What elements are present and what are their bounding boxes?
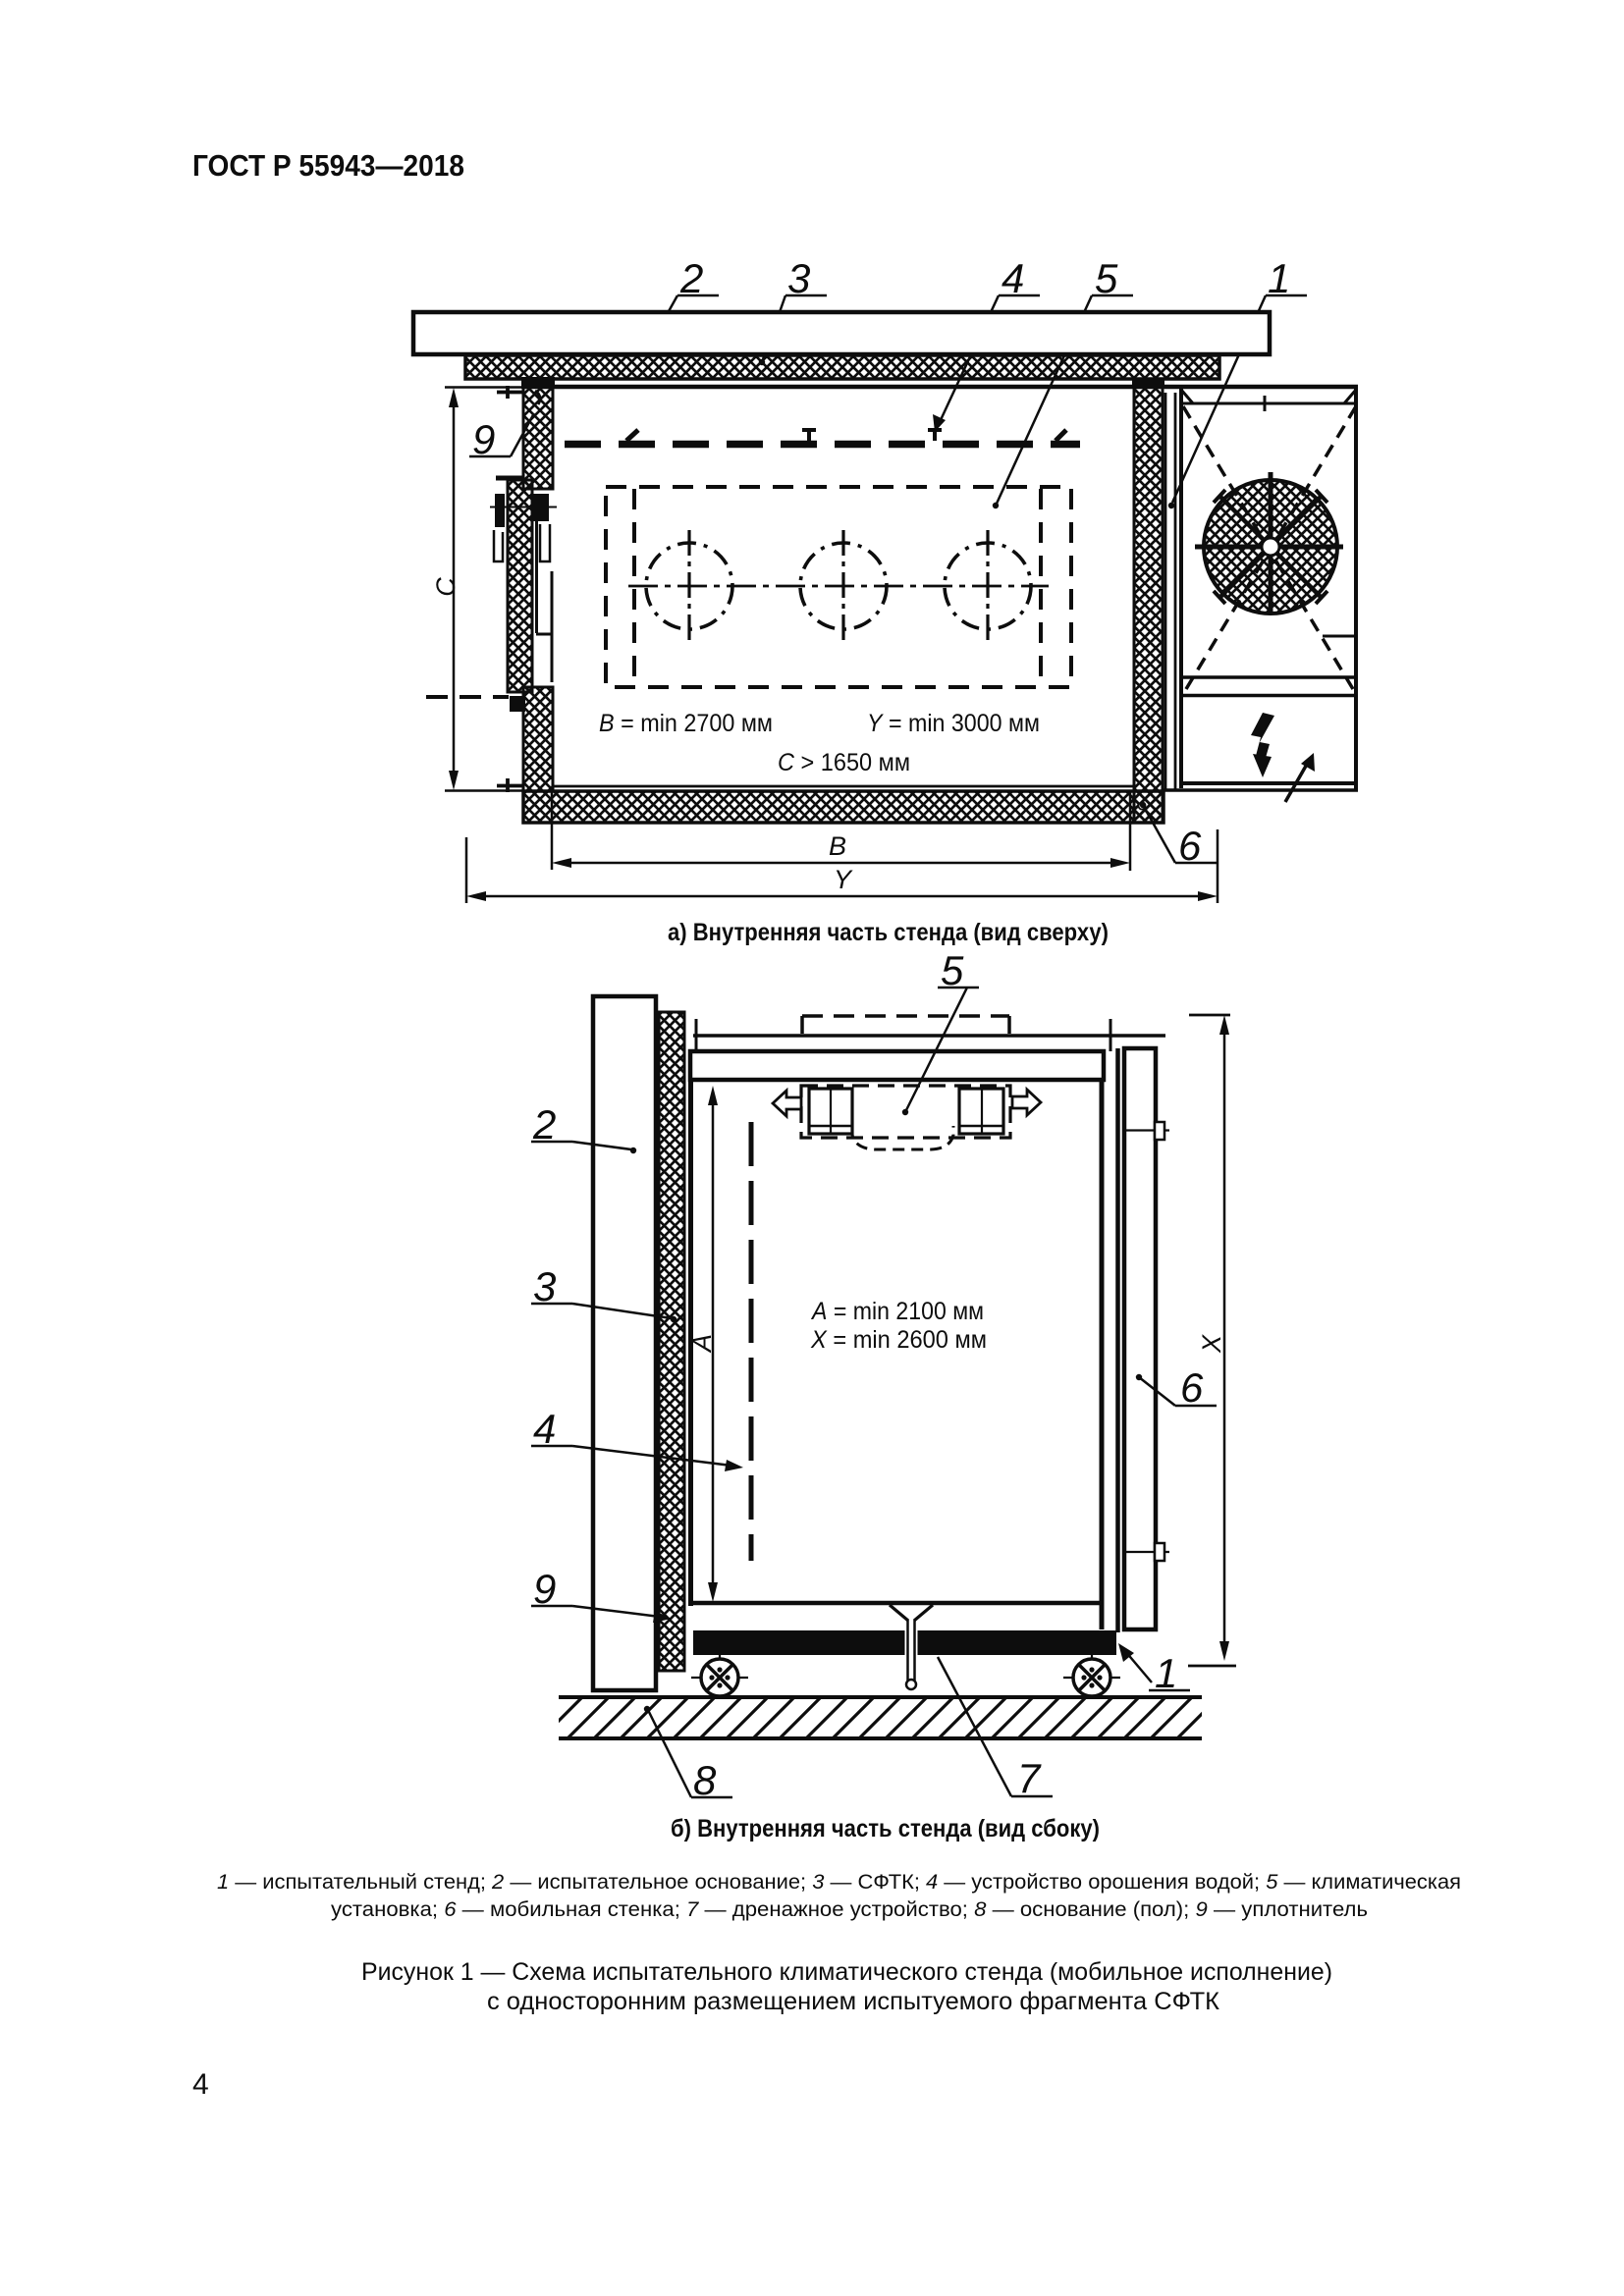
- svg-text:с односторонним размещением ис: с односторонним размещением испытуемого …: [487, 1988, 1219, 2015]
- svg-text:B = min 2700 мм: B = min 2700 мм: [599, 710, 773, 737]
- svg-text:A = min 2100 мм: A = min 2100 мм: [810, 1298, 984, 1325]
- svg-text:7: 7: [1017, 1755, 1042, 1801]
- svg-text:установка; 6 — мобильная стенк: установка; 6 — мобильная стенка; 7 — дре…: [331, 1897, 1368, 1921]
- svg-text:X: X: [1197, 1334, 1226, 1354]
- svg-text:б) Внутренняя часть стенда (ви: б) Внутренняя часть стенда (вид сбоку): [671, 1815, 1100, 1842]
- svg-text:1 — испытательный стенд; 2 — и: 1 — испытательный стенд; 2 — испытательн…: [217, 1870, 1461, 1894]
- svg-text:4: 4: [192, 2068, 209, 2101]
- svg-text:C > 1650 мм: C > 1650 мм: [778, 749, 910, 776]
- svg-text:Y = min 3000 мм: Y = min 3000 мм: [867, 710, 1040, 737]
- svg-text:ГОСТ Р 55943—2018: ГОСТ Р 55943—2018: [192, 148, 464, 183]
- svg-text:X = min 2600 мм: X = min 2600 мм: [810, 1326, 987, 1354]
- svg-text:6: 6: [1180, 1364, 1204, 1411]
- svg-text:а) Внутренняя часть стенда (ви: а) Внутренняя часть стенда (вид сверху): [668, 919, 1109, 946]
- svg-text:Y: Y: [834, 865, 853, 894]
- svg-text:C: C: [431, 577, 460, 597]
- svg-text:A: A: [687, 1334, 717, 1354]
- svg-text:Рисунок 1 — Схема испытательно: Рисунок 1 — Схема испытательного климати…: [361, 1958, 1332, 1986]
- svg-text:B: B: [829, 831, 846, 861]
